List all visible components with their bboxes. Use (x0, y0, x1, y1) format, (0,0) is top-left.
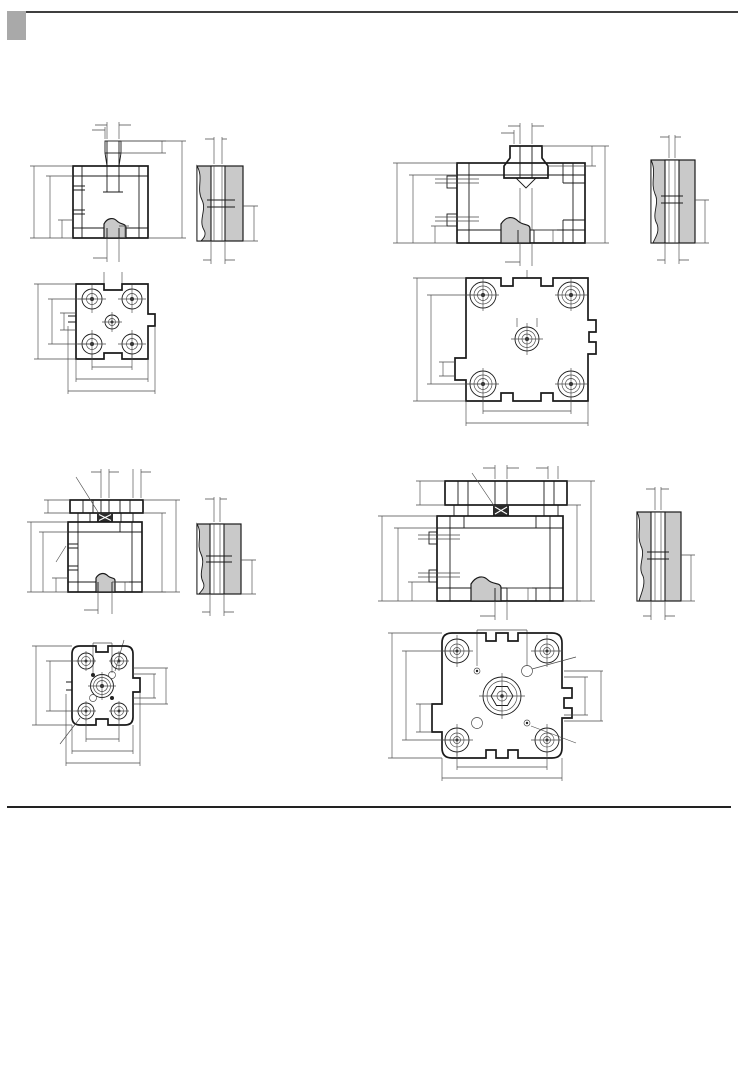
etl-32-100-drawing (368, 450, 736, 802)
panel-et-32-100 (383, 86, 738, 438)
bottom-view (413, 270, 596, 426)
top-rule (26, 11, 738, 13)
panel-etl-16-25 (8, 430, 358, 804)
front-view (27, 469, 180, 614)
page (0, 0, 738, 1065)
front-view (393, 123, 609, 266)
section-marker (7, 11, 26, 40)
front-view (30, 122, 186, 262)
side-view (637, 487, 695, 620)
et-32-100-drawing (383, 108, 738, 436)
panel-etl-32-100 (368, 430, 738, 804)
side-view (197, 137, 258, 264)
side-view (651, 135, 709, 264)
front-view (378, 465, 595, 620)
side-view (197, 497, 256, 616)
bottom-view (388, 630, 603, 781)
panel-et-16-25 (8, 86, 358, 430)
et-16-25-drawing (8, 108, 353, 408)
bottom-view (32, 640, 168, 766)
dimension-table (7, 806, 731, 808)
etl-16-25-drawing (8, 450, 353, 802)
bottom-view (34, 272, 155, 394)
